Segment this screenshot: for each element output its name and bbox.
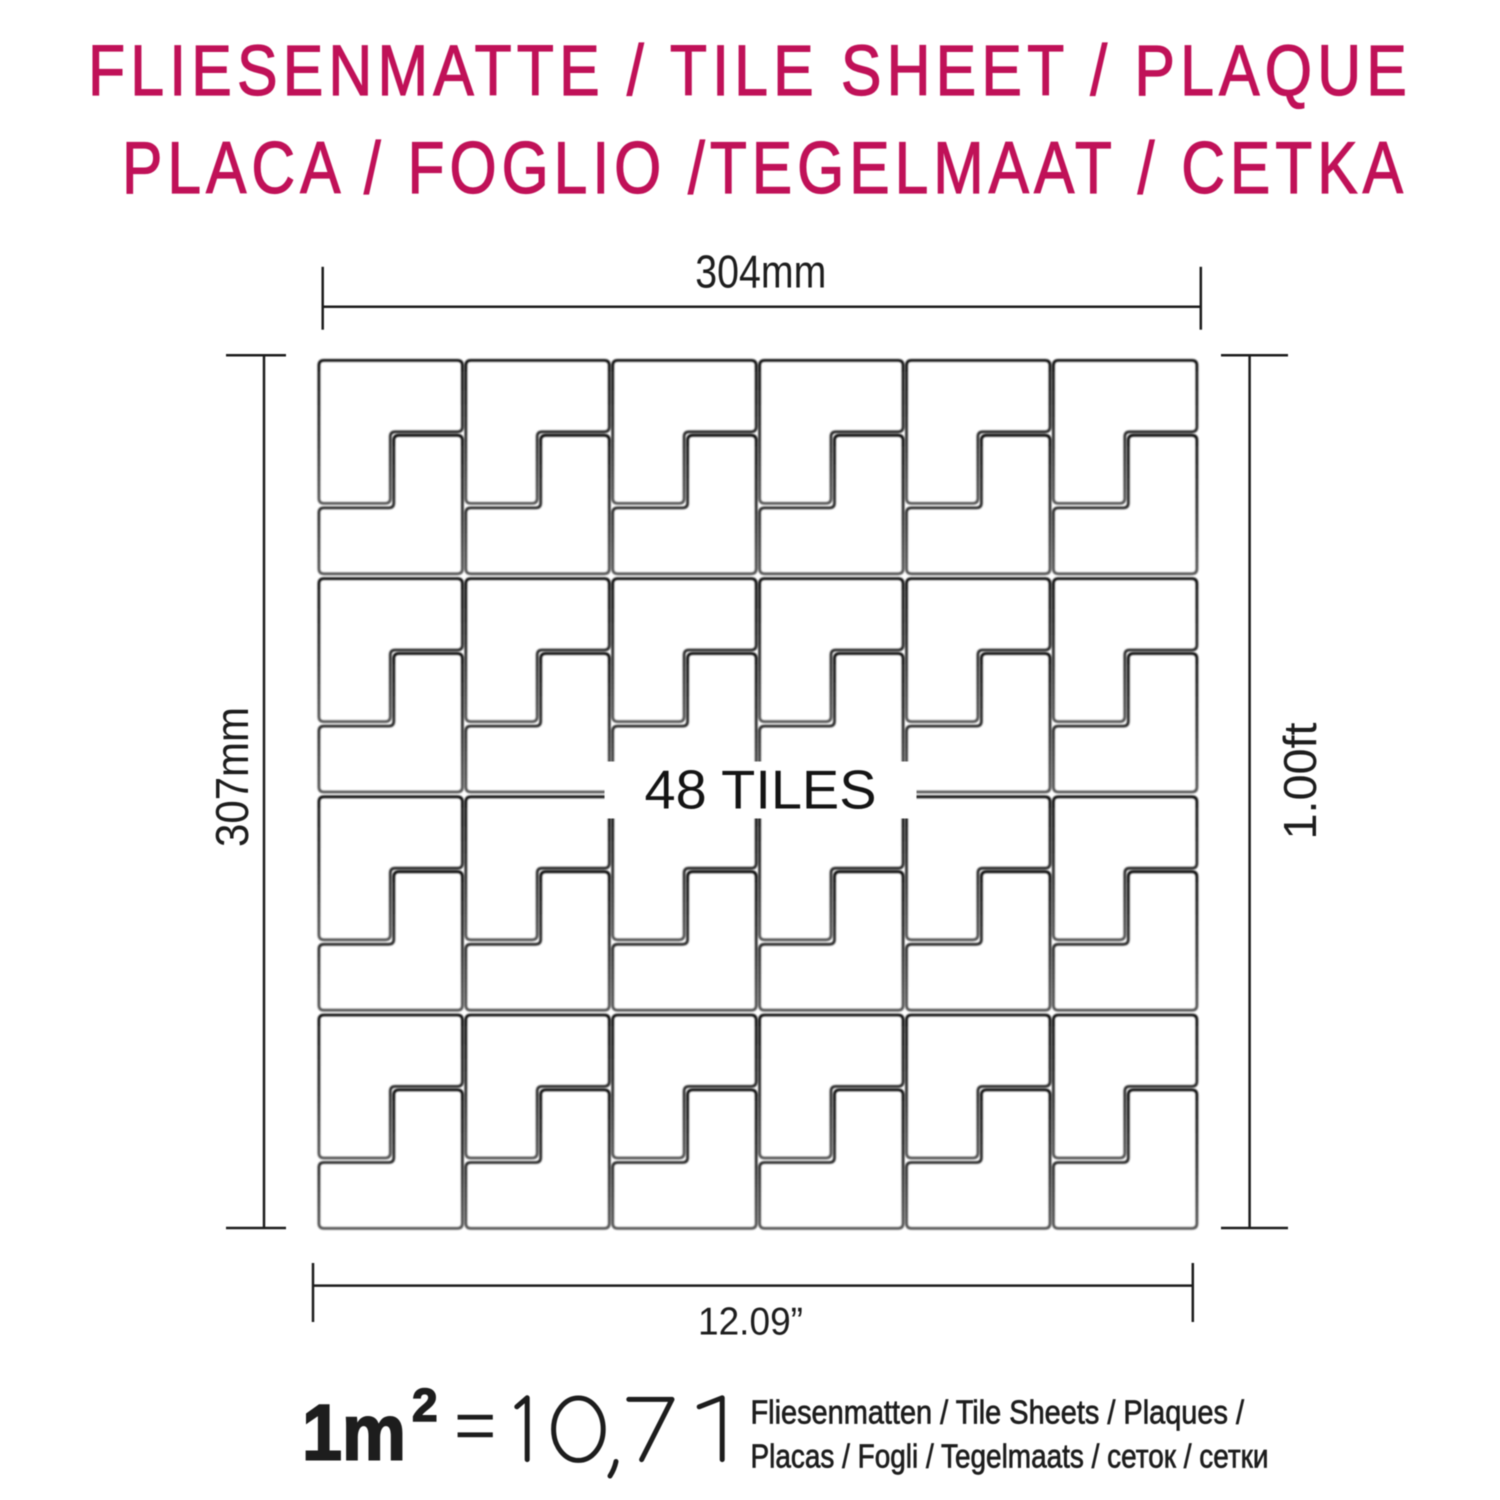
svg-text:1m: 1m	[302, 1388, 406, 1477]
svg-text:2: 2	[412, 1379, 438, 1431]
svg-text:307mm: 307mm	[206, 707, 258, 847]
svg-text:1.00ft: 1.00ft	[1274, 722, 1326, 839]
svg-text:12.09”: 12.09”	[698, 1301, 803, 1344]
svg-text:Fliesenmatten / Tile Sheets /: Fliesenmatten / Tile Sheets / Plaques /	[751, 1394, 1245, 1431]
svg-text:48 TILES: 48 TILES	[645, 759, 877, 821]
svg-text:FLIESENMATTE / TILE SHEET / PL: FLIESENMATTE / TILE SHEET / PLAQUE	[88, 32, 1412, 111]
svg-text:304mm: 304mm	[695, 246, 826, 298]
svg-text:PLACA / FOGLIO /TEGELMAAT / CE: PLACA / FOGLIO /TEGELMAAT / CETKA	[122, 128, 1408, 209]
svg-text:Placas / Fogli / Tegelmaats /: Placas / Fogli / Tegelmaats / сеток / се…	[751, 1438, 1269, 1475]
